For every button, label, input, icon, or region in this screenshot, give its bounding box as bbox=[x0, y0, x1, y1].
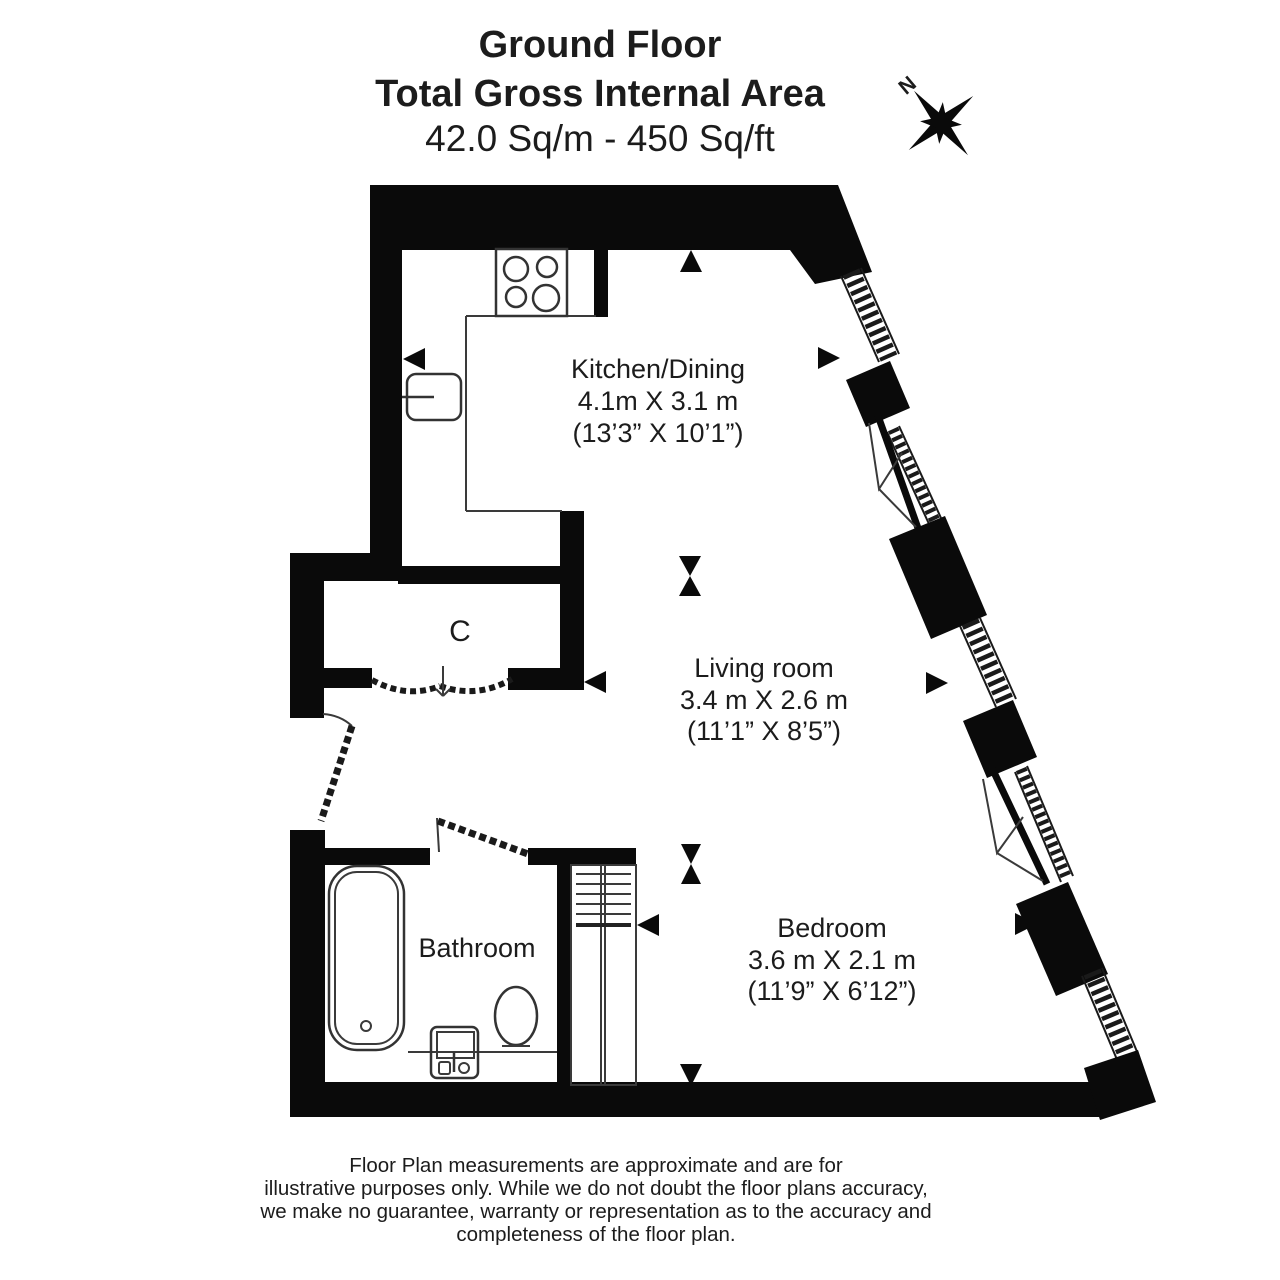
floor-plan-page: Ground Floor Total Gross Internal Area 4… bbox=[0, 0, 1280, 1280]
kitchen-name: Kitchen/Dining bbox=[571, 354, 745, 384]
footer-line-1: Floor Plan measurements are approximate … bbox=[349, 1154, 843, 1177]
title-line-1: Ground Floor bbox=[479, 24, 722, 66]
marker-right-triangle-upper bbox=[818, 347, 840, 369]
marker-hourglass-bedroom bbox=[681, 844, 701, 884]
living-room-name: Living room bbox=[694, 653, 834, 683]
wall-kitchen-left bbox=[370, 185, 402, 578]
living-room-label: Living room 3.4 m X 2.6 m (11’1” X 8’5”) bbox=[680, 653, 848, 746]
window-2 bbox=[960, 618, 1016, 707]
wall-cupboard-bottom-right bbox=[508, 668, 568, 690]
bathroom-door bbox=[437, 818, 528, 854]
window-1 bbox=[841, 268, 899, 362]
living-room-size-metric: 3.4 m X 2.6 m bbox=[680, 685, 848, 715]
facade-pier-4 bbox=[1016, 882, 1108, 996]
wall-cupboard-bottom-left bbox=[324, 668, 372, 688]
door-1 bbox=[869, 413, 941, 531]
facade-pier-3 bbox=[963, 700, 1037, 778]
bedroom-name: Bedroom bbox=[777, 913, 887, 943]
wall-bathroom-right bbox=[557, 865, 571, 1085]
marker-right-triangle-mid bbox=[926, 672, 948, 694]
wall-cupboard-right bbox=[560, 511, 584, 690]
cupboard-label: C bbox=[449, 615, 471, 648]
kitchen-label: Kitchen/Dining 4.1m X 3.1 m (13’3” X 10’… bbox=[571, 354, 745, 448]
footer-disclaimer: Floor Plan measurements are approximate … bbox=[259, 1154, 931, 1246]
kitchen-size-imperial: (13’3” X 10’1”) bbox=[572, 418, 743, 448]
footer-line-4: completeness of the floor plan. bbox=[456, 1223, 735, 1246]
kitchen-fittings bbox=[402, 249, 596, 511]
floor-plan-svg: Ground Floor Total Gross Internal Area 4… bbox=[0, 0, 1280, 1280]
bathroom-label: Bathroom bbox=[418, 933, 535, 963]
north-compass-icon: N bbox=[894, 72, 973, 155]
toilet-icon bbox=[495, 987, 537, 1046]
entrance-door bbox=[321, 714, 352, 821]
bedroom-size-metric: 3.6 m X 2.1 m bbox=[748, 945, 916, 975]
stove-icon bbox=[496, 249, 567, 316]
wall-top bbox=[370, 185, 810, 250]
wall-cupboard-top bbox=[398, 566, 570, 584]
marker-up-triangle bbox=[680, 250, 702, 272]
marker-left-triangle-cupboard bbox=[584, 671, 606, 693]
door-2 bbox=[983, 766, 1073, 884]
bathroom-fittings bbox=[329, 866, 557, 1078]
wall-bathroom-left bbox=[290, 830, 325, 1117]
wall-stove-stub bbox=[594, 247, 608, 317]
stairs-icon bbox=[571, 865, 636, 1085]
wall-bathroom-top-right bbox=[528, 848, 636, 865]
appliance-icon bbox=[402, 374, 461, 420]
room-labels: Kitchen/Dining 4.1m X 3.1 m (13’3” X 10’… bbox=[418, 354, 916, 1006]
wall-hall-left bbox=[290, 553, 324, 718]
footer-line-2: illustrative purposes only. While we do … bbox=[264, 1177, 928, 1200]
bedroom-label: Bedroom 3.6 m X 2.1 m (11’9” X 6’12”) bbox=[747, 913, 916, 1006]
bedroom-size-imperial: (11’9” X 6’12”) bbox=[747, 976, 916, 1006]
title-line-3: 42.0 Sq/m - 450 Sq/ft bbox=[425, 118, 775, 159]
facade-pier-2 bbox=[889, 516, 987, 639]
walls bbox=[290, 185, 1108, 1117]
bathtub-icon bbox=[329, 866, 404, 1050]
wall-top-right-corner bbox=[790, 185, 872, 284]
window-3 bbox=[1082, 968, 1138, 1062]
living-room-size-imperial: (11’1” X 8’5”) bbox=[687, 716, 841, 746]
marker-hourglass-living bbox=[679, 556, 701, 596]
footer-line-3: we make no guarantee, warranty or repres… bbox=[259, 1200, 931, 1223]
wall-bathroom-top-left bbox=[325, 848, 430, 865]
kitchen-size-metric: 4.1m X 3.1 m bbox=[578, 386, 739, 416]
title-line-2: Total Gross Internal Area bbox=[375, 73, 826, 115]
cupboard-bifold-door bbox=[372, 666, 512, 696]
title-block: Ground Floor Total Gross Internal Area 4… bbox=[375, 24, 826, 159]
wall-bottom bbox=[290, 1082, 1108, 1117]
marker-left-triangle-kitchen bbox=[403, 348, 425, 370]
marker-left-triangle-stairs bbox=[637, 914, 659, 936]
